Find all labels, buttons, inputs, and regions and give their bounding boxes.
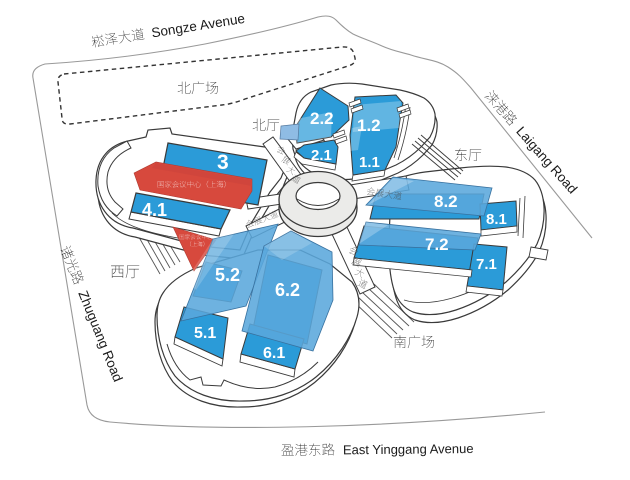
svg-text:5.1: 5.1 <box>194 325 216 342</box>
svg-text:7.2: 7.2 <box>425 235 449 254</box>
svg-text:East Yinggang Avenue: East Yinggang Avenue <box>343 441 474 457</box>
svg-text:8.2: 8.2 <box>434 192 458 211</box>
svg-text:1.2: 1.2 <box>357 116 381 135</box>
svg-text:6.1: 6.1 <box>263 345 285 362</box>
svg-text:2.2: 2.2 <box>310 109 334 128</box>
svg-text:6.2: 6.2 <box>275 280 300 300</box>
svg-text:1.1: 1.1 <box>359 154 380 171</box>
svg-text:5.2: 5.2 <box>215 265 240 285</box>
svg-text:4.1: 4.1 <box>142 200 167 220</box>
svg-text:8.1: 8.1 <box>486 211 507 228</box>
svg-text:Songze Avenue: Songze Avenue <box>150 11 246 41</box>
svg-text:Zhuguang Road: Zhuguang Road <box>75 288 125 383</box>
svg-text:2.1: 2.1 <box>311 147 332 164</box>
svg-text:3: 3 <box>217 151 229 174</box>
svg-text:7.1: 7.1 <box>476 256 497 273</box>
